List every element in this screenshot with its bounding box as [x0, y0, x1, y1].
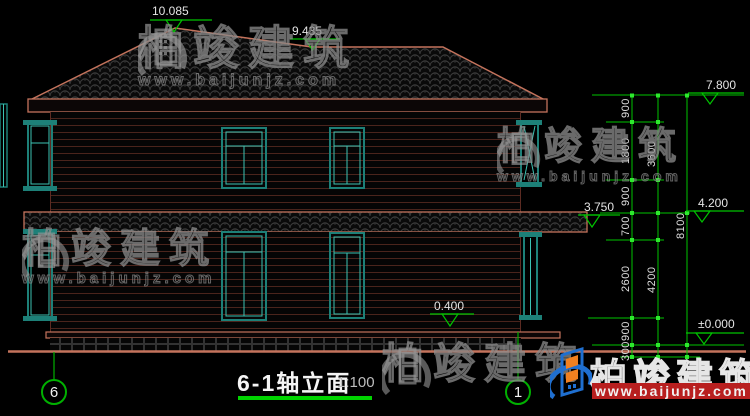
belt-course [46, 332, 560, 338]
dim-700: 700 [620, 216, 632, 236]
dim-900c: 900 [620, 321, 632, 341]
level-sec-ridge: 9.435 [292, 24, 322, 38]
dim-8100: 8100 [675, 213, 687, 239]
baijun-logo-color-icon [550, 345, 592, 405]
window-2f-bay-left [24, 121, 56, 190]
level-canopy: 3.750 [584, 200, 614, 214]
watermark-url-front: www.baijunjz.com [592, 383, 750, 399]
dim-1800: 1800 [620, 138, 632, 164]
window-2f-side-right [517, 121, 541, 186]
window-2f-side-fragment [0, 104, 7, 187]
stone-plinth [50, 338, 521, 351]
first-floor-wall [50, 232, 521, 332]
drawing-title: 6-1轴立面 [237, 364, 351, 398]
level-eave: 7.800 [706, 78, 736, 92]
level-ridge: 10.085 [152, 4, 189, 18]
main-roof [28, 28, 547, 112]
level-sill: 0.400 [434, 299, 464, 313]
cad-elevation-canvas: 10.085 9.435 7.800 4.200 3.750 0.400 ±0.… [0, 0, 750, 416]
window-1f-bay-left [24, 230, 56, 320]
dim-900a: 900 [620, 98, 632, 118]
drawing-scale: 1:100 [337, 374, 375, 391]
window-1f-side-right [520, 233, 541, 319]
dim-4200: 4200 [646, 267, 658, 293]
dim-3600: 3600 [646, 141, 658, 167]
second-floor-wall [50, 112, 521, 212]
axis-bubble-6: 6 [42, 384, 66, 401]
axis-bubble-1: 1 [506, 384, 530, 401]
level-ground: ±0.000 [698, 317, 735, 331]
title-underline [238, 396, 372, 400]
level-floor2: 4.200 [698, 196, 728, 210]
dim-900b: 900 [620, 186, 632, 206]
first-floor-canopy [24, 212, 587, 232]
dim-2600: 2600 [620, 266, 632, 292]
